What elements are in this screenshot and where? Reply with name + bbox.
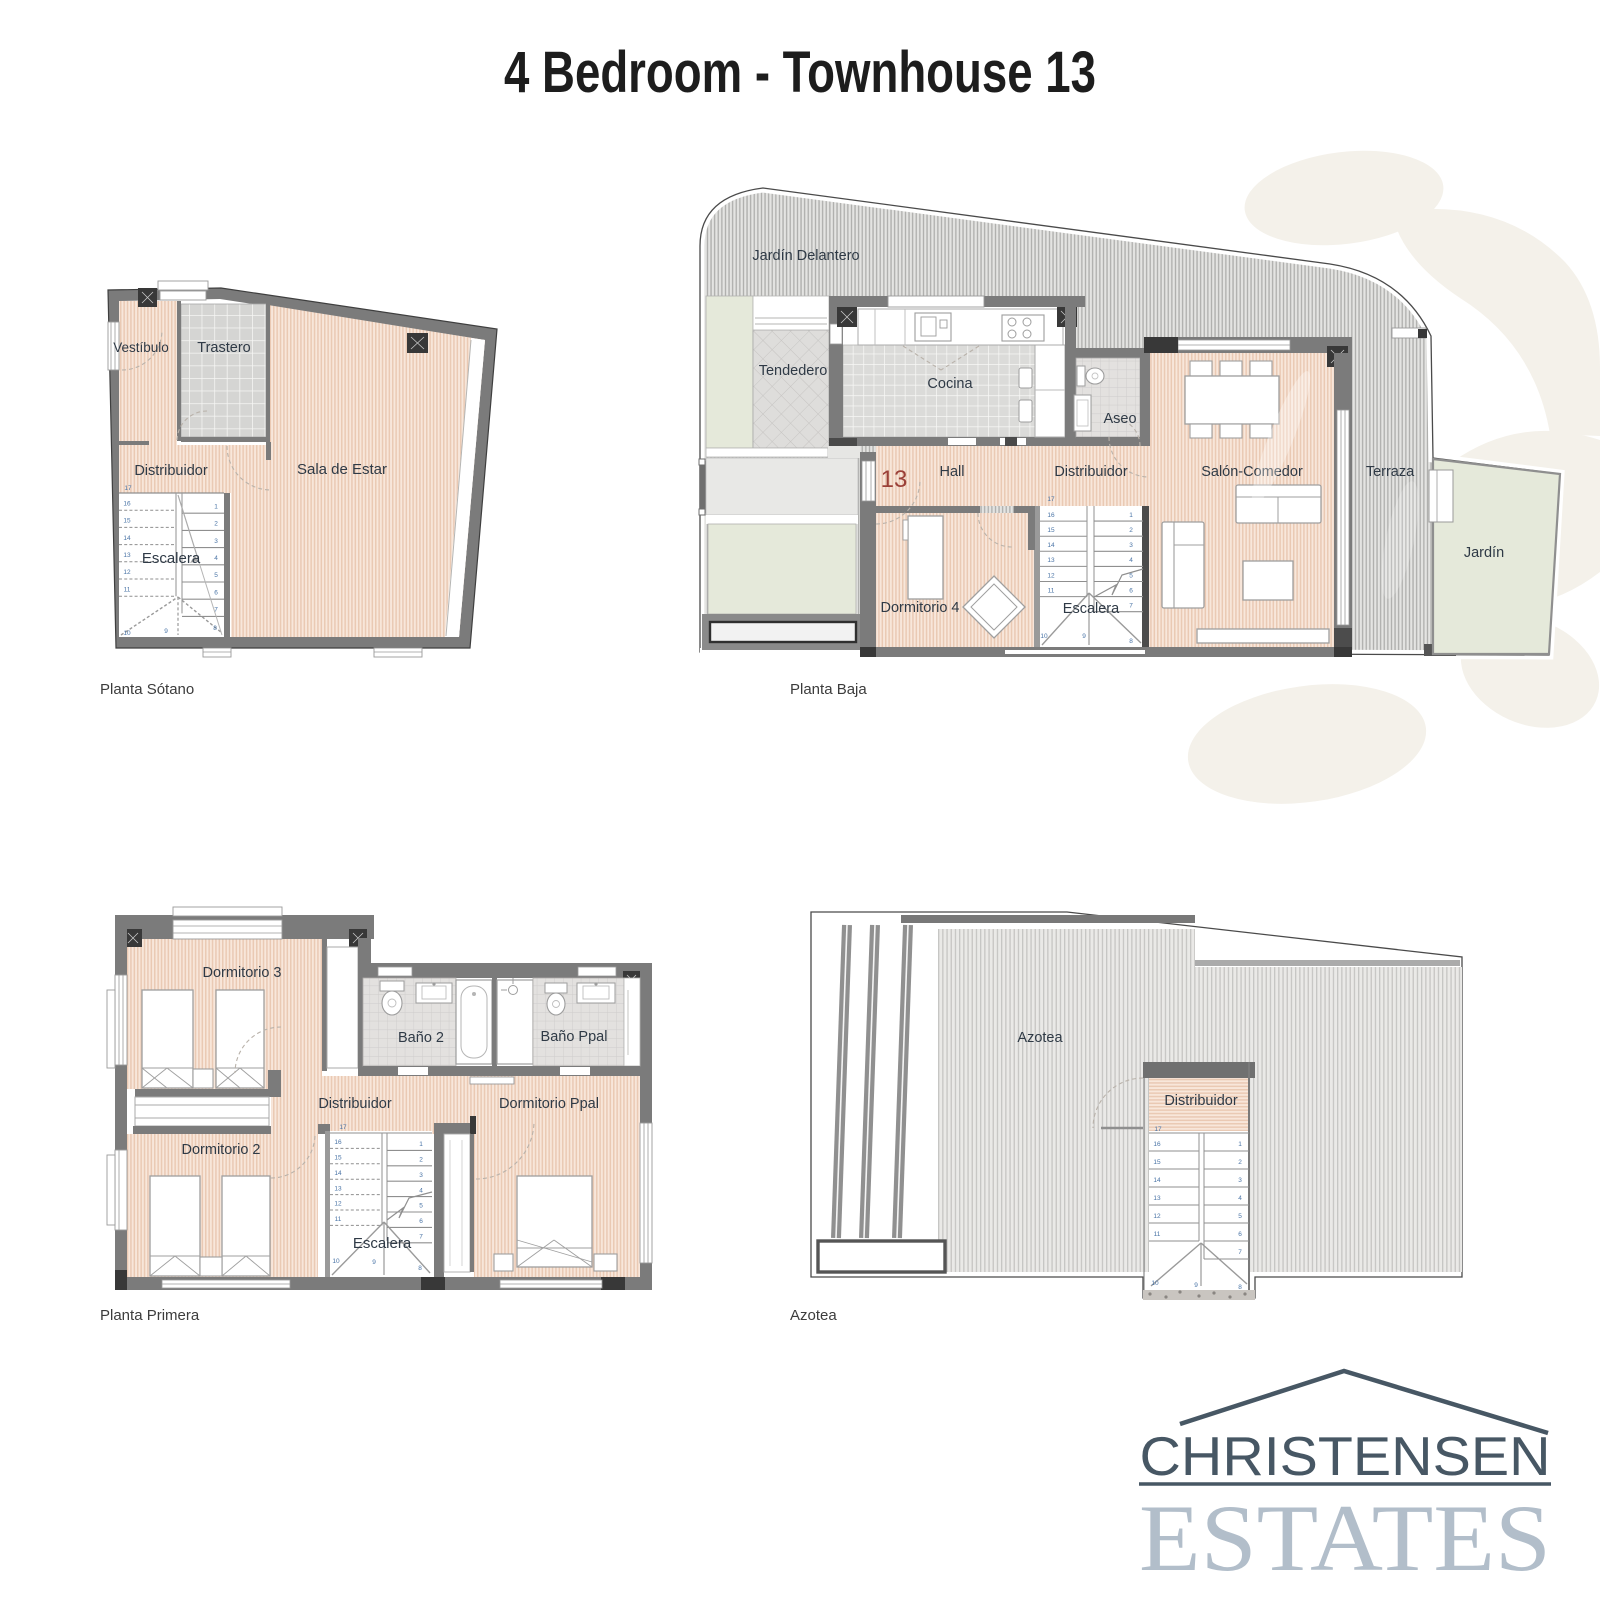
svg-text:9: 9 bbox=[164, 628, 168, 635]
svg-text:14: 14 bbox=[1153, 1177, 1161, 1184]
svg-text:Jardín: Jardín bbox=[1464, 545, 1504, 561]
svg-text:11: 11 bbox=[124, 586, 131, 593]
svg-text:4: 4 bbox=[214, 555, 218, 562]
svg-text:Baño 2: Baño 2 bbox=[398, 1030, 444, 1046]
svg-text:10: 10 bbox=[1151, 1280, 1159, 1287]
svg-text:6: 6 bbox=[1129, 587, 1133, 594]
svg-text:Jardín Delantero: Jardín Delantero bbox=[752, 248, 859, 264]
svg-text:1: 1 bbox=[419, 1141, 423, 1148]
svg-text:15: 15 bbox=[123, 518, 131, 525]
svg-text:7: 7 bbox=[1129, 602, 1133, 609]
svg-text:2: 2 bbox=[214, 521, 218, 528]
svg-text:7: 7 bbox=[419, 1233, 423, 1240]
svg-text:1: 1 bbox=[1238, 1141, 1242, 1148]
svg-text:7: 7 bbox=[1238, 1249, 1242, 1256]
svg-text:Distribuidor: Distribuidor bbox=[1164, 1093, 1237, 1109]
svg-text:Azotea: Azotea bbox=[790, 1307, 837, 1324]
svg-text:13: 13 bbox=[1047, 557, 1055, 564]
svg-text:Terraza: Terraza bbox=[1366, 464, 1415, 480]
svg-text:10: 10 bbox=[123, 630, 131, 637]
svg-text:3: 3 bbox=[214, 538, 218, 545]
svg-text:16: 16 bbox=[1153, 1141, 1161, 1148]
svg-text:10: 10 bbox=[332, 1258, 340, 1265]
svg-text:Baño Ppal: Baño Ppal bbox=[541, 1029, 608, 1045]
svg-text:2: 2 bbox=[1238, 1159, 1242, 1166]
svg-text:4: 4 bbox=[419, 1187, 423, 1194]
svg-text:12: 12 bbox=[1153, 1213, 1161, 1220]
svg-text:13: 13 bbox=[1153, 1195, 1161, 1202]
svg-text:4 Bedroom - Townhouse 13: 4 Bedroom - Townhouse 13 bbox=[504, 40, 1096, 105]
svg-text:11: 11 bbox=[1048, 587, 1055, 594]
svg-text:Cocina: Cocina bbox=[927, 376, 973, 392]
svg-text:Planta Primera: Planta Primera bbox=[100, 1307, 200, 1324]
svg-text:Aseo: Aseo bbox=[1103, 411, 1136, 427]
svg-text:Dormitorio 4: Dormitorio 4 bbox=[881, 600, 960, 616]
svg-text:16: 16 bbox=[1047, 512, 1055, 519]
svg-text:CHRISTENSEN: CHRISTENSEN bbox=[1140, 1425, 1551, 1487]
svg-text:5: 5 bbox=[419, 1203, 423, 1210]
svg-text:ESTATES: ESTATES bbox=[1139, 1485, 1551, 1591]
svg-text:17: 17 bbox=[124, 485, 132, 492]
svg-text:Tendedero: Tendedero bbox=[759, 363, 828, 379]
svg-text:8: 8 bbox=[213, 625, 217, 632]
svg-text:6: 6 bbox=[1238, 1231, 1242, 1238]
svg-text:Planta Baja: Planta Baja bbox=[790, 681, 867, 698]
svg-text:2: 2 bbox=[1129, 527, 1133, 534]
svg-text:3: 3 bbox=[1129, 542, 1133, 549]
svg-text:2: 2 bbox=[419, 1156, 423, 1163]
svg-text:Sala de Estar: Sala de Estar bbox=[297, 461, 387, 478]
svg-text:8: 8 bbox=[1129, 638, 1133, 645]
svg-text:5: 5 bbox=[1238, 1213, 1242, 1220]
svg-text:Distribuidor: Distribuidor bbox=[134, 463, 207, 479]
svg-text:Azotea: Azotea bbox=[1017, 1030, 1063, 1046]
svg-text:Distribuidor: Distribuidor bbox=[1054, 464, 1127, 480]
svg-text:4: 4 bbox=[1129, 557, 1133, 564]
svg-text:Escalera: Escalera bbox=[1063, 601, 1120, 617]
svg-text:15: 15 bbox=[1047, 527, 1055, 534]
svg-text:17: 17 bbox=[1047, 496, 1055, 503]
svg-text:1: 1 bbox=[1129, 512, 1133, 519]
svg-text:6: 6 bbox=[419, 1218, 423, 1225]
svg-text:15: 15 bbox=[1153, 1159, 1161, 1166]
svg-text:15: 15 bbox=[334, 1154, 342, 1161]
svg-text:8: 8 bbox=[1238, 1284, 1242, 1291]
svg-text:13: 13 bbox=[334, 1185, 342, 1192]
svg-text:6: 6 bbox=[214, 589, 218, 596]
svg-text:16: 16 bbox=[123, 500, 131, 507]
svg-text:Escalera: Escalera bbox=[353, 1235, 412, 1252]
svg-text:17: 17 bbox=[339, 1124, 347, 1131]
svg-text:3: 3 bbox=[419, 1172, 423, 1179]
svg-text:10: 10 bbox=[1040, 633, 1048, 640]
svg-text:1: 1 bbox=[214, 503, 218, 510]
svg-text:13: 13 bbox=[123, 552, 131, 559]
svg-text:17: 17 bbox=[1154, 1126, 1162, 1133]
svg-text:Salón-Comedor: Salón-Comedor bbox=[1201, 464, 1303, 480]
svg-text:Trastero: Trastero bbox=[197, 340, 250, 356]
svg-text:12: 12 bbox=[123, 569, 131, 576]
svg-text:14: 14 bbox=[1047, 542, 1055, 549]
svg-text:9: 9 bbox=[1194, 1282, 1198, 1289]
svg-text:3: 3 bbox=[1238, 1177, 1242, 1184]
svg-text:Dormitorio 2: Dormitorio 2 bbox=[182, 1142, 261, 1158]
svg-text:Escalera: Escalera bbox=[142, 550, 201, 567]
svg-text:Hall: Hall bbox=[940, 464, 965, 480]
svg-text:12: 12 bbox=[334, 1201, 342, 1208]
svg-text:14: 14 bbox=[334, 1170, 342, 1177]
svg-text:13: 13 bbox=[881, 466, 908, 493]
svg-text:Dormitorio Ppal: Dormitorio Ppal bbox=[499, 1096, 599, 1112]
svg-text:16: 16 bbox=[334, 1139, 342, 1146]
svg-text:8: 8 bbox=[418, 1265, 422, 1272]
svg-text:12: 12 bbox=[1047, 572, 1055, 579]
svg-text:4: 4 bbox=[1238, 1195, 1242, 1202]
svg-text:Distribuidor: Distribuidor bbox=[318, 1096, 391, 1112]
svg-text:9: 9 bbox=[372, 1259, 376, 1266]
svg-text:Dormitorio 3: Dormitorio 3 bbox=[203, 965, 282, 981]
svg-text:Vestíbulo: Vestíbulo bbox=[113, 340, 169, 355]
svg-text:Planta Sótano: Planta Sótano bbox=[100, 681, 194, 698]
svg-text:14: 14 bbox=[123, 535, 131, 542]
svg-text:9: 9 bbox=[1082, 633, 1086, 640]
svg-text:11: 11 bbox=[1154, 1231, 1161, 1238]
svg-text:5: 5 bbox=[214, 572, 218, 579]
svg-text:11: 11 bbox=[335, 1216, 342, 1223]
